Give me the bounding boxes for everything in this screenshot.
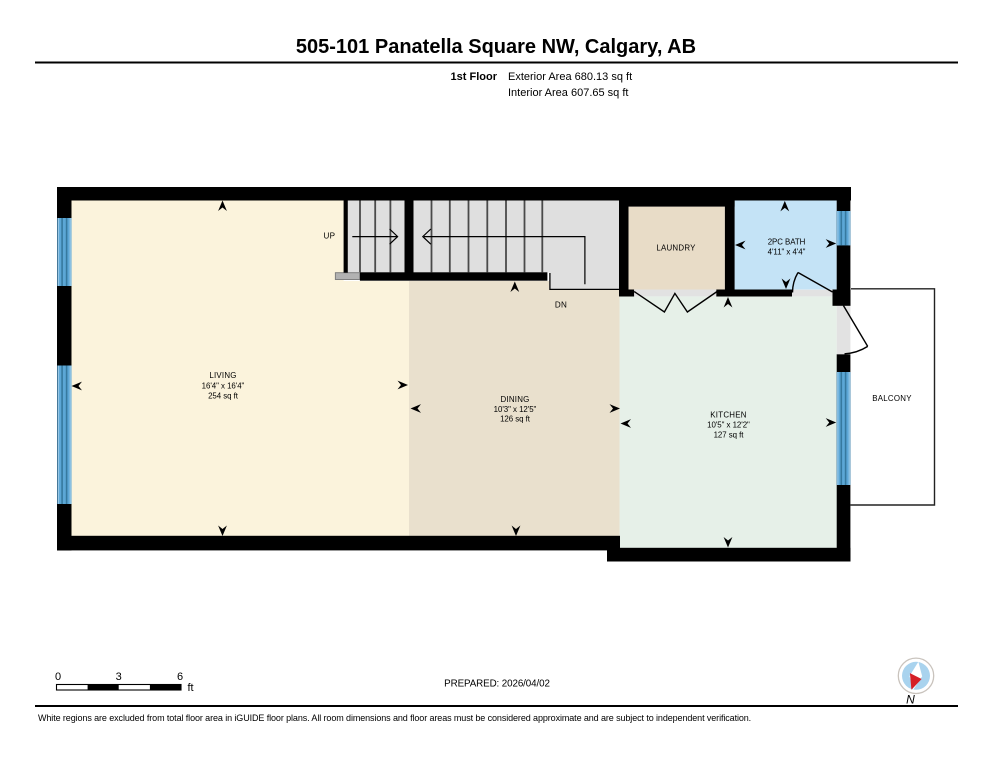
svg-text:127 sq ft: 127 sq ft: [714, 431, 745, 440]
svg-text:3: 3: [116, 671, 122, 683]
svg-text:1st Floor: 1st Floor: [451, 71, 498, 83]
svg-text:PREPARED: 2026/04/02: PREPARED: 2026/04/02: [444, 679, 550, 690]
svg-text:N: N: [906, 693, 915, 707]
svg-text:2PC BATH: 2PC BATH: [768, 238, 806, 247]
svg-text:Exterior Area 680.13 sq ft: Exterior Area 680.13 sq ft: [508, 71, 632, 83]
svg-text:10'3" x 12'5": 10'3" x 12'5": [494, 405, 537, 414]
svg-text:DN: DN: [555, 300, 567, 309]
svg-text:505-101 Panatella Square NW, C: 505-101 Panatella Square NW, Calgary, AB: [296, 36, 696, 58]
svg-text:LAUNDRY: LAUNDRY: [656, 244, 696, 253]
svg-text:KITCHEN: KITCHEN: [710, 411, 746, 420]
svg-text:16'4" x 16'4": 16'4" x 16'4": [202, 381, 245, 390]
svg-text:DINING: DINING: [500, 395, 529, 404]
svg-text:White regions are excluded fro: White regions are excluded from total fl…: [38, 713, 751, 723]
svg-text:LIVING: LIVING: [209, 371, 236, 380]
svg-text:UP: UP: [323, 232, 335, 241]
svg-text:6: 6: [177, 671, 183, 683]
svg-text:126 sq ft: 126 sq ft: [500, 415, 531, 424]
svg-text:4'11" x 4'4": 4'11" x 4'4": [768, 247, 806, 256]
svg-text:ft: ft: [188, 682, 194, 694]
svg-text:10'5" x 12'2": 10'5" x 12'2": [707, 421, 750, 430]
svg-text:0: 0: [55, 671, 61, 683]
svg-text:254 sq ft: 254 sq ft: [208, 392, 239, 401]
svg-text:Interior Area 607.65 sq ft: Interior Area 607.65 sq ft: [508, 87, 628, 99]
svg-text:BALCONY: BALCONY: [872, 394, 912, 403]
